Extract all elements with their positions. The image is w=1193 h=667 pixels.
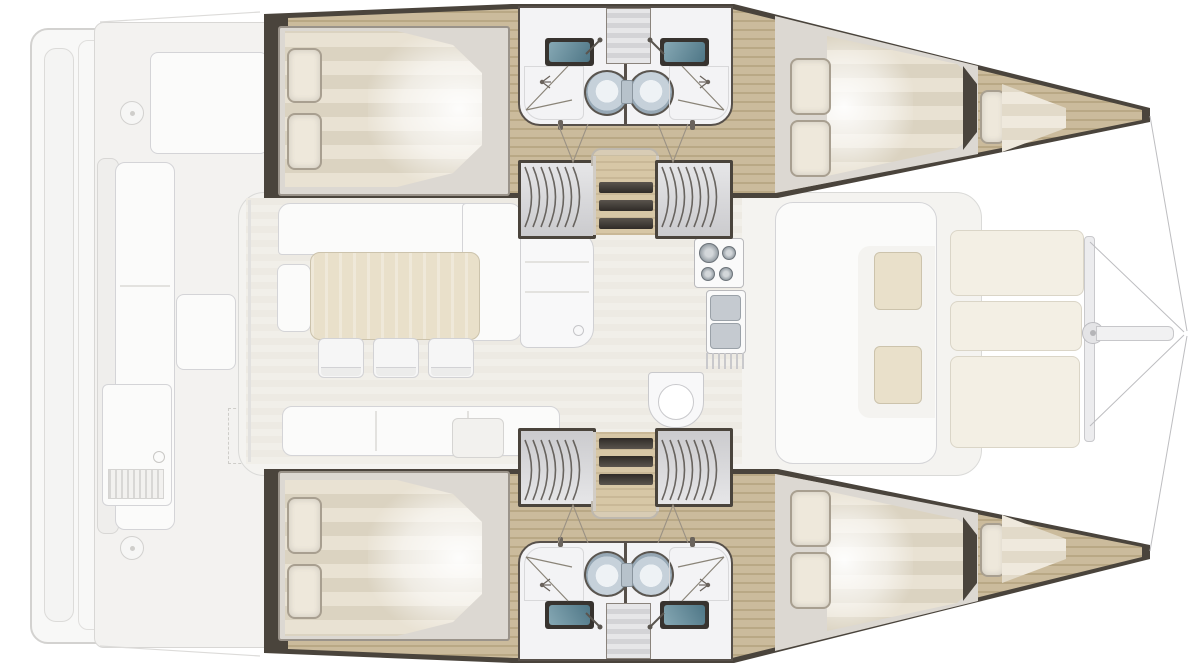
berth-sheet-fold <box>827 36 913 176</box>
deck-hatch-starboard <box>120 536 144 560</box>
bathroom-sink <box>545 38 594 66</box>
dish-drainer <box>706 353 744 369</box>
forward-cockpit-table <box>874 346 922 404</box>
grill-knob <box>153 451 165 463</box>
port-hull <box>258 2 1160 238</box>
bathroom-door-post <box>690 120 695 130</box>
hanging-wardrobe <box>518 428 596 507</box>
hanging-wardrobe <box>655 428 733 507</box>
sink-basin <box>549 42 590 62</box>
galley-peninsula <box>648 372 704 428</box>
chair-back <box>321 367 361 376</box>
berth-pillow <box>287 113 322 170</box>
sliding-door-track <box>248 200 251 462</box>
hatch-dot <box>130 546 135 551</box>
toilet <box>628 551 674 597</box>
shower-tray <box>524 66 584 120</box>
bathroom-door-post <box>558 537 563 547</box>
berth-pillow <box>287 48 322 103</box>
berth-pillow <box>790 552 831 609</box>
bathroom-block <box>518 6 733 126</box>
sink-basin <box>710 295 741 321</box>
dining-chair <box>318 338 364 378</box>
hanging-wardrobe <box>655 160 733 239</box>
toilet-cistern <box>621 80 633 104</box>
dining-table <box>310 252 480 340</box>
toilet-cistern <box>621 563 633 587</box>
cockpit-table <box>176 294 236 370</box>
stair-tread <box>599 474 653 485</box>
bathroom-block <box>518 541 733 661</box>
hanging-wardrobe <box>518 160 596 239</box>
shower-tray <box>669 66 729 120</box>
stair-tread <box>599 218 653 229</box>
stove-burner <box>722 246 736 260</box>
deck-hatch-port <box>120 101 144 125</box>
catamaran-floor-plan <box>0 0 1193 667</box>
stove-burner <box>699 243 719 263</box>
stair-tread <box>599 456 653 467</box>
peninsula-basin <box>658 384 694 420</box>
toilet <box>628 70 674 116</box>
trampoline-panel <box>950 301 1082 351</box>
counter-shelf-line <box>525 291 589 293</box>
berth-sheet-fold <box>827 491 913 631</box>
bathroom-door-post <box>690 537 695 547</box>
berth-pillow <box>790 120 831 177</box>
counter-knob <box>573 325 584 336</box>
grill-module <box>102 384 172 506</box>
swim-platform-step <box>44 48 74 622</box>
stove-burner <box>719 267 733 281</box>
bathroom-sink <box>660 601 709 629</box>
sink-basin <box>664 42 705 62</box>
sink-basin <box>664 605 705 625</box>
forward-cockpit-table <box>874 252 922 310</box>
trampoline-panel <box>950 230 1084 296</box>
stove-burner <box>701 267 715 281</box>
chair-back <box>431 367 471 376</box>
dining-chair <box>373 338 419 378</box>
berth-pillow <box>790 490 831 547</box>
shower-tray <box>524 547 584 601</box>
bathroom-sink <box>660 38 709 66</box>
bathroom-door-post <box>558 120 563 130</box>
cockpit-sunpad <box>150 52 268 154</box>
bathroom-sink <box>545 601 594 629</box>
sink-basin <box>549 605 590 625</box>
dining-chair <box>428 338 474 378</box>
hatch-dot <box>130 111 135 116</box>
galley-double-sink <box>706 290 746 354</box>
bowsprit <box>1096 326 1174 341</box>
companionway-stairs <box>593 432 659 511</box>
berth-pillow <box>790 58 831 115</box>
bathroom-center-shelf <box>606 8 651 64</box>
sink-basin <box>710 323 741 349</box>
stair-tread <box>599 182 653 193</box>
galley-stove <box>694 238 744 288</box>
stair-tread <box>599 438 653 449</box>
companionway-stairs <box>593 156 659 235</box>
counter-shelf-line <box>525 261 589 263</box>
chair-back <box>376 367 416 376</box>
galley-counter <box>520 230 594 348</box>
saloon-side-seat <box>277 264 311 332</box>
stair-tread <box>599 200 653 211</box>
berth-pillow <box>287 497 322 554</box>
bench-cushion-seam <box>120 285 170 287</box>
bathroom-center-shelf <box>606 603 651 659</box>
shower-tray <box>669 547 729 601</box>
berth-pillow <box>287 564 322 619</box>
starboard-hull <box>258 429 1160 665</box>
grill-grate <box>108 469 164 499</box>
